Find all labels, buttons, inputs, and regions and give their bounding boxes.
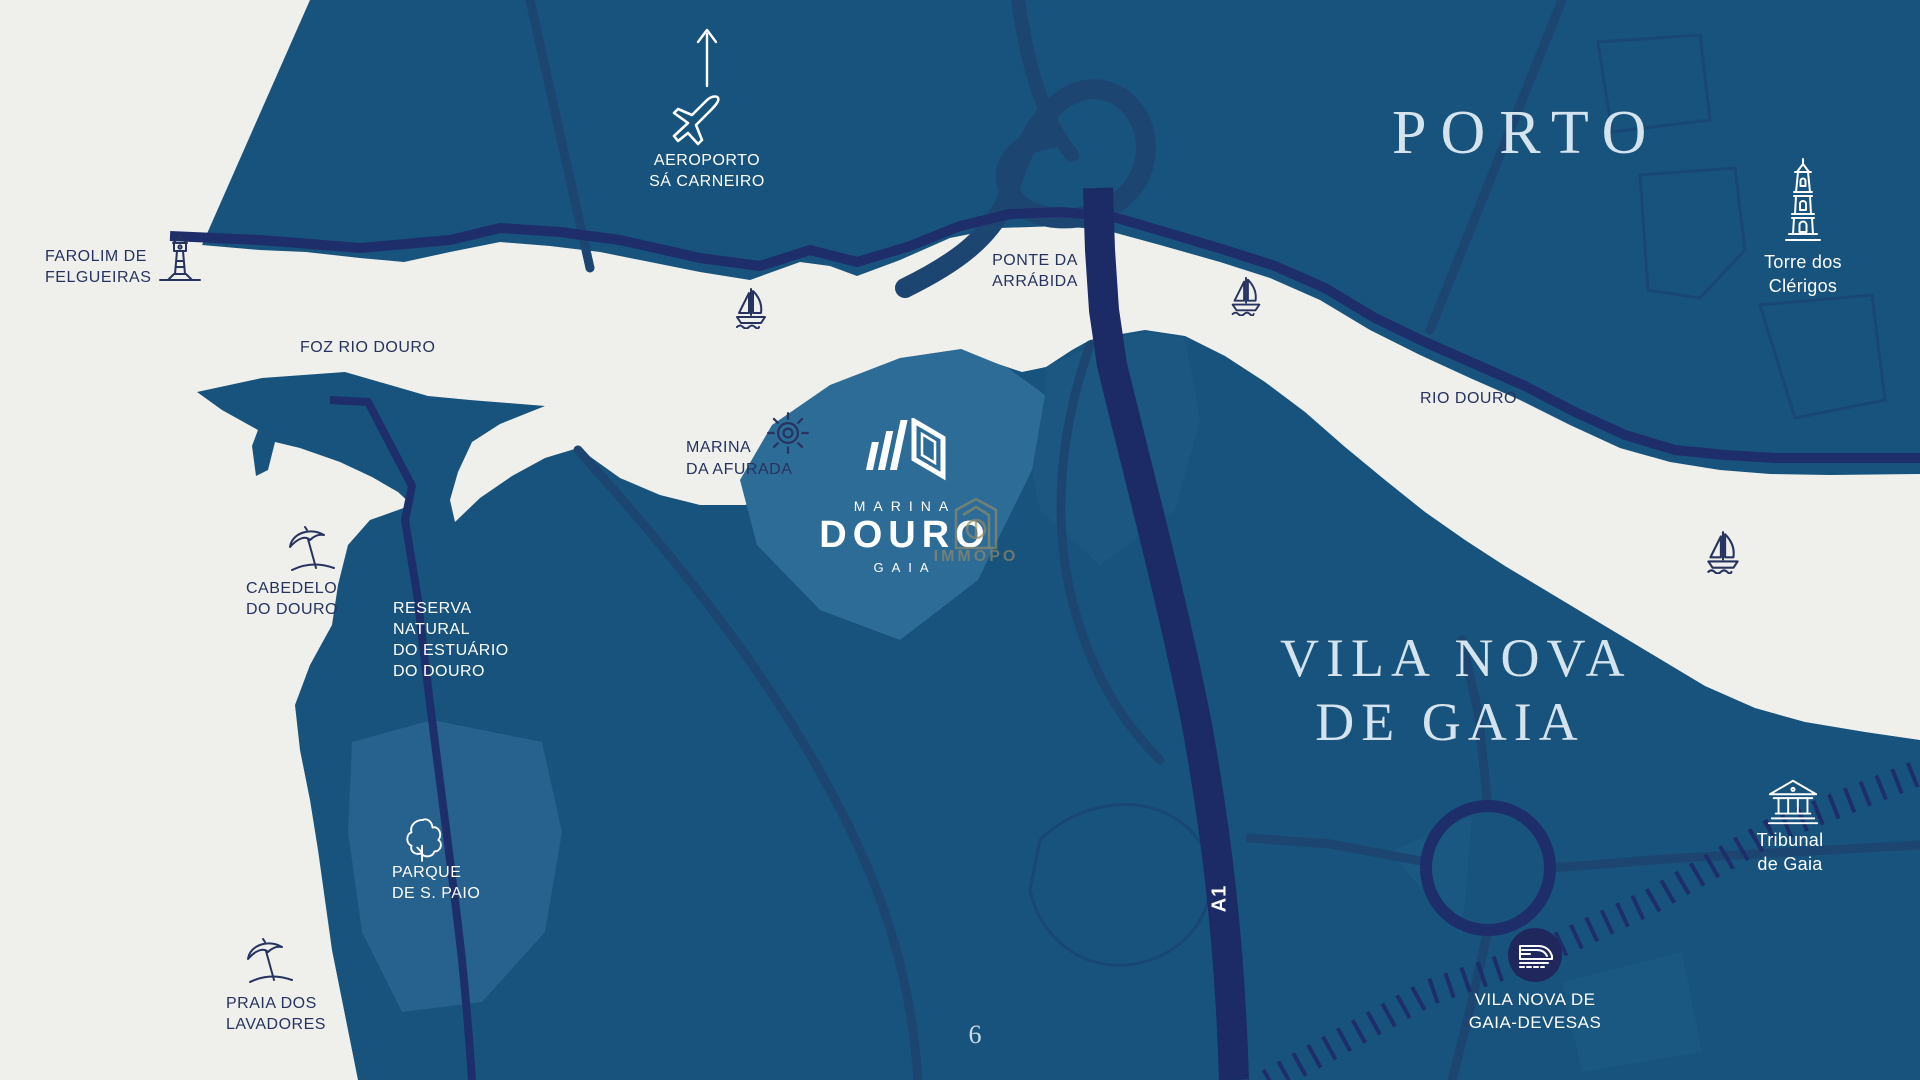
lighthouse-icon xyxy=(156,234,204,284)
reserva-label: RESERVA NATURAL DO ESTUÁRIO DO DOURO xyxy=(393,598,509,682)
immopo-watermark: IMMOPO xyxy=(926,496,1026,566)
farolim-label: FAROLIM DE FELGUEIRAS xyxy=(45,246,151,288)
sailboat-icon xyxy=(1700,528,1746,574)
cabedelo-label: CABEDELO DO DOURO xyxy=(246,578,338,620)
ponte-arrabida-label: PONTE DA ARRÁBIDA xyxy=(955,250,1115,292)
airplane-icon xyxy=(664,86,732,146)
brochure-map: MARINA DOURO GAIA IMMOPO AEROPORTO SÁ CA… xyxy=(0,0,1920,1080)
courthouse-icon xyxy=(1766,776,1820,826)
a1-road-label: A1 xyxy=(1209,885,1230,913)
tribunal-label: Tribunal de Gaia xyxy=(1710,828,1870,876)
aeroporto-label: AEROPORTO SÁ CARNEIRO xyxy=(607,150,807,192)
marina-afurada-label: MARINA DA AFURADA xyxy=(686,437,792,481)
praia-lavadores-label: PRAIA DOS LAVADORES xyxy=(226,993,326,1035)
immopo-watermark-text: IMMOPO xyxy=(926,548,1026,566)
devesas-label: VILA NOVA DE GAIA-DEVESAS xyxy=(1425,988,1645,1034)
sailboat-icon xyxy=(729,285,773,329)
north-arrow-icon xyxy=(693,26,721,88)
sailboat-icon xyxy=(1225,274,1267,316)
foz-rio-douro-label: FOZ RIO DOURO xyxy=(300,337,435,358)
tower-icon xyxy=(1781,158,1825,246)
porto-city-label: PORTO xyxy=(1392,102,1660,164)
rio-douro-label: RIO DOURO xyxy=(1420,388,1517,409)
train-icon xyxy=(1508,928,1562,982)
torre-clerigos-label: Torre dos Clérigos xyxy=(1723,250,1883,298)
vila-nova-gaia-label: VILA NOVA DE GAIA xyxy=(1280,626,1620,754)
immopo-shield-icon xyxy=(926,496,1026,552)
tree-icon xyxy=(402,816,444,862)
parque-label: PARQUE DE S. PAIO xyxy=(392,862,480,904)
beach-umbrella-icon xyxy=(284,526,342,572)
beach-umbrella-icon xyxy=(242,938,300,984)
page-number: 6 xyxy=(958,1020,992,1050)
marina-douro-logo-mark xyxy=(815,418,995,494)
